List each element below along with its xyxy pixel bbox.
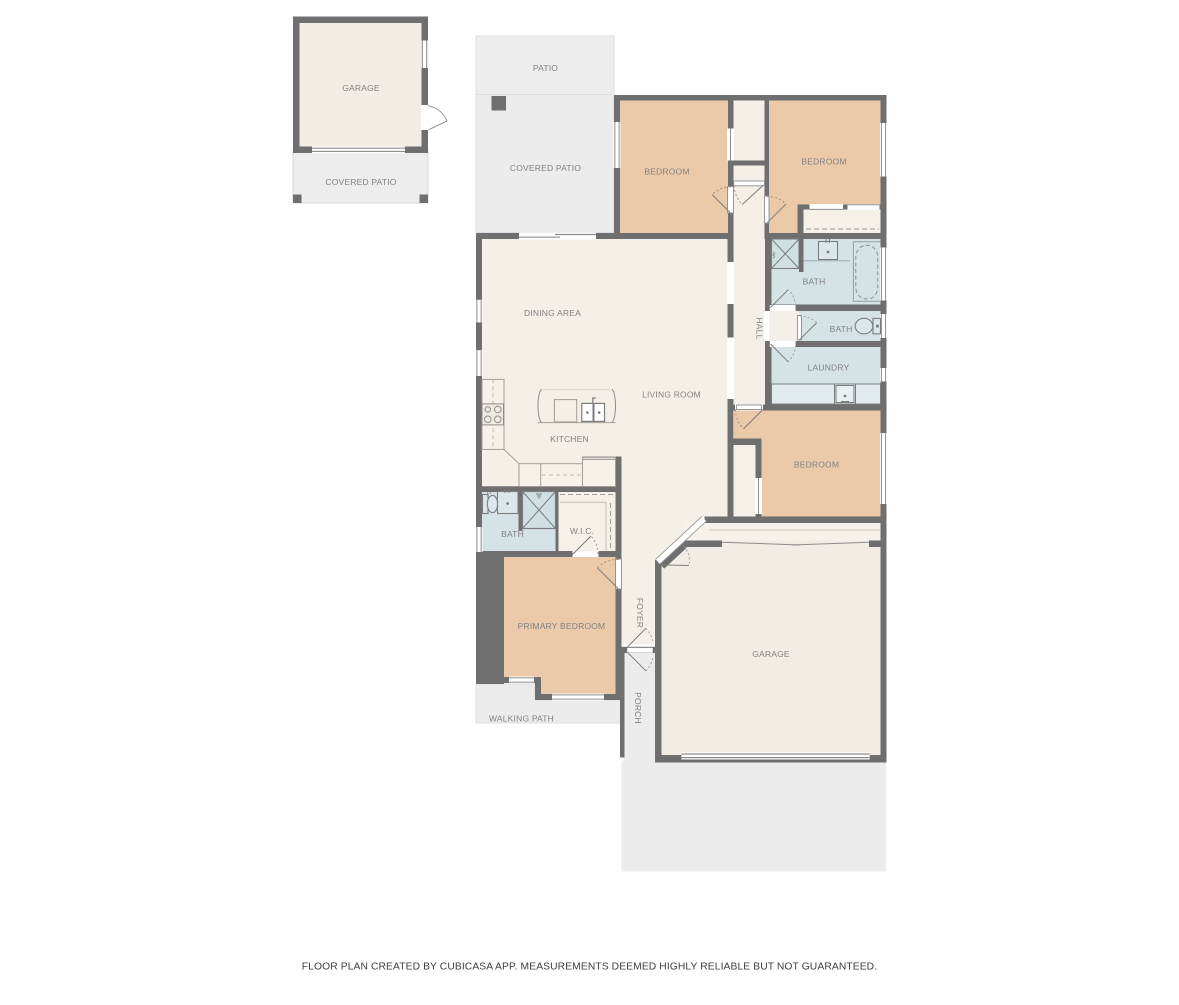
svg-text:FOYER: FOYER [635,598,645,628]
svg-text:KITCHEN: KITCHEN [550,434,589,444]
svg-text:HALL: HALL [755,317,765,339]
svg-text:GARAGE: GARAGE [342,83,380,93]
svg-text:LAUNDRY: LAUNDRY [808,363,850,373]
svg-text:DINING AREA: DINING AREA [524,308,581,318]
svg-text:FLOOR PLAN CREATED BY CUBICASA: FLOOR PLAN CREATED BY CUBICASA APP. MEAS… [302,962,877,973]
svg-text:PORCH: PORCH [633,692,643,724]
svg-text:BATH: BATH [803,277,826,287]
svg-text:PATIO: PATIO [533,63,558,73]
svg-text:BEDROOM: BEDROOM [801,157,846,167]
svg-text:W.I.C.: W.I.C. [570,526,594,536]
svg-text:BATH: BATH [501,529,524,539]
svg-text:BATH: BATH [830,324,853,334]
svg-text:COVERED PATIO: COVERED PATIO [510,163,581,173]
svg-text:PRIMARY BEDROOM: PRIMARY BEDROOM [518,621,606,631]
svg-text:GARAGE: GARAGE [752,649,790,659]
svg-text:LIVING ROOM: LIVING ROOM [642,390,701,400]
svg-text:BEDROOM: BEDROOM [794,460,839,470]
svg-text:COVERED PATIO: COVERED PATIO [325,177,396,187]
svg-text:WALKING PATH: WALKING PATH [489,714,554,724]
svg-text:BEDROOM: BEDROOM [644,167,689,177]
